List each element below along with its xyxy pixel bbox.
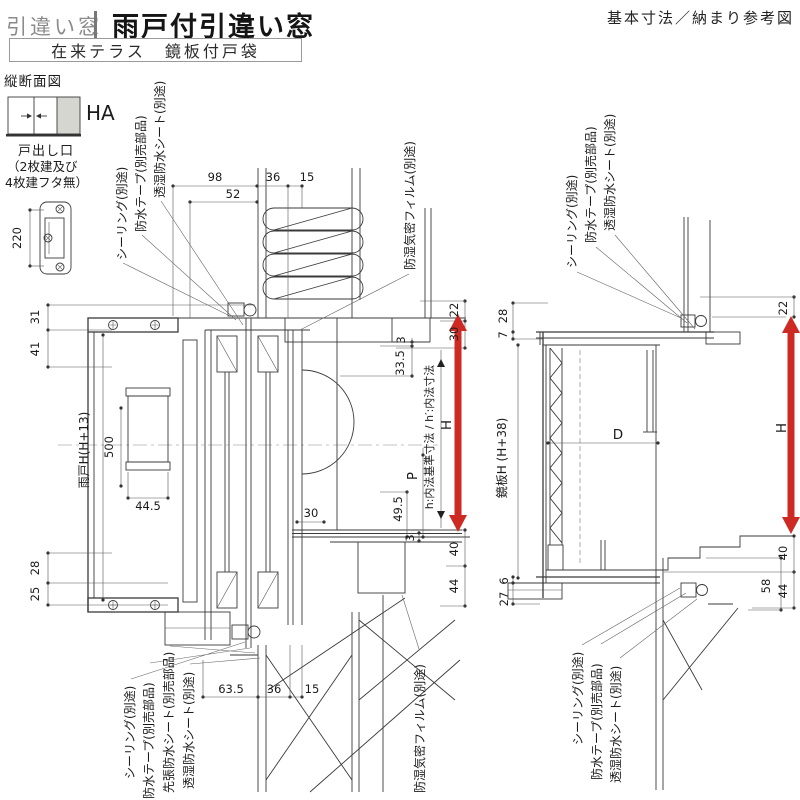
shutter-box [88, 318, 197, 612]
dim-500: 500 [102, 436, 116, 458]
legend-window-icon: HA [6, 97, 115, 135]
dim-H-right: H [774, 423, 790, 433]
left-drawing-labels: 98 36 15 52 31 41 雨戸H(H+13) 500 44.5 28 … [28, 81, 461, 799]
floor-base-crosshatch [358, 542, 405, 593]
dim-63-5: 63.5 [218, 682, 244, 696]
dim-7: 7 [496, 331, 510, 338]
dim-40-right: 40 [776, 546, 790, 561]
note-film-top: 防湿気密フィルム(別途) [402, 141, 417, 270]
handle-clearance-arc [302, 370, 354, 474]
window-frame-section [205, 318, 354, 648]
interior-floor [292, 530, 470, 593]
dim-44: 44 [447, 579, 461, 594]
dim-33-5: 33.5 [393, 350, 407, 376]
step-profile [656, 536, 795, 570]
dim-52: 52 [226, 187, 241, 201]
dim-H: H [439, 420, 455, 430]
dim-44-5: 44.5 [135, 499, 161, 513]
dim-kagami-height: 鏡板H (H+38) [494, 418, 509, 499]
dim-30-mid: 30 [304, 506, 319, 520]
right-section-drawing [508, 217, 795, 790]
note-sheet-top: 透湿防水シート(別途) [152, 81, 167, 198]
dim-36-top: 36 [266, 170, 281, 184]
naiho-note: h:内法基準寸法 / h′:内法寸法 [422, 365, 436, 510]
dim-28-right: 28 [496, 309, 510, 324]
note-film-bottom: 防湿気密フィルム(別途) [412, 664, 427, 793]
right-sill [508, 570, 660, 599]
dim-3-top: 3 [394, 336, 408, 343]
section-drawing-canvas: HA 220 [0, 0, 800, 800]
note-sheet-bottom-right: 透湿防水シート(別途) [608, 666, 623, 783]
legend-code: HA [86, 101, 115, 125]
dim-27: 27 [497, 592, 511, 607]
dim-49-5: 49.5 [391, 496, 405, 522]
dim-98: 98 [208, 170, 223, 184]
note-tape-top-right: 防水テープ(別売部品) [583, 126, 598, 243]
right-drawing-labels: 28 7 22 鏡板H (H+38) D H 40 58 44 6 27 シーリ… [494, 114, 790, 783]
note-sealing-bottom-right: シーリング(別途) [570, 652, 585, 745]
door-pull-detail: 220 [10, 202, 71, 274]
dim-15-bottom: 15 [305, 682, 320, 696]
dim-36-bottom: 36 [267, 682, 282, 696]
dim-41: 41 [28, 342, 42, 357]
dim-P: P [405, 472, 421, 480]
right-dimension-lines [511, 235, 795, 658]
note-sealing-top: シーリング(別途) [114, 167, 129, 260]
dim-58: 58 [759, 579, 773, 594]
dim-25: 25 [28, 587, 42, 602]
note-presheet-bottom: 先張防水シート(別売部品) [161, 652, 176, 793]
dim-amado-height: 雨戸H(H+13) [77, 412, 91, 489]
dim-15-top: 15 [300, 170, 315, 184]
dim-22-right: 22 [776, 301, 790, 316]
insulation-coils [263, 208, 363, 299]
page: { "header": { "category": "引違い窓", "title… [0, 0, 800, 800]
note-tape-top: 防水テープ(別売部品) [133, 115, 148, 232]
dim-30: 30 [447, 327, 461, 342]
dim-D: D [613, 427, 623, 443]
dim-22: 22 [447, 303, 461, 318]
note-sealing-bottom: シーリング(別途) [122, 686, 137, 779]
dim-6: 6 [497, 577, 511, 584]
dim-44-right: 44 [776, 584, 790, 599]
note-sealing-top-right: シーリング(別途) [564, 175, 579, 268]
screw-icon [44, 205, 64, 271]
mirror-panel [543, 332, 563, 598]
note-sheet-bottom: 透湿防水シート(別途) [181, 672, 196, 789]
note-tape-bottom: 防水テープ(別売部品) [141, 682, 156, 799]
note-sheet-top-right: 透湿防水シート(別途) [602, 114, 617, 231]
right-sealing-bottom [681, 583, 708, 597]
dim-3-bottom: 3 [403, 534, 417, 541]
back-panel-stippled [183, 340, 197, 602]
dim-31: 31 [28, 310, 42, 325]
dim-40: 40 [447, 542, 461, 557]
handle-height-dim: 220 [10, 227, 24, 249]
dim-28: 28 [28, 561, 42, 576]
note-tape-bottom-right: 防水テープ(別売部品) [589, 663, 604, 780]
